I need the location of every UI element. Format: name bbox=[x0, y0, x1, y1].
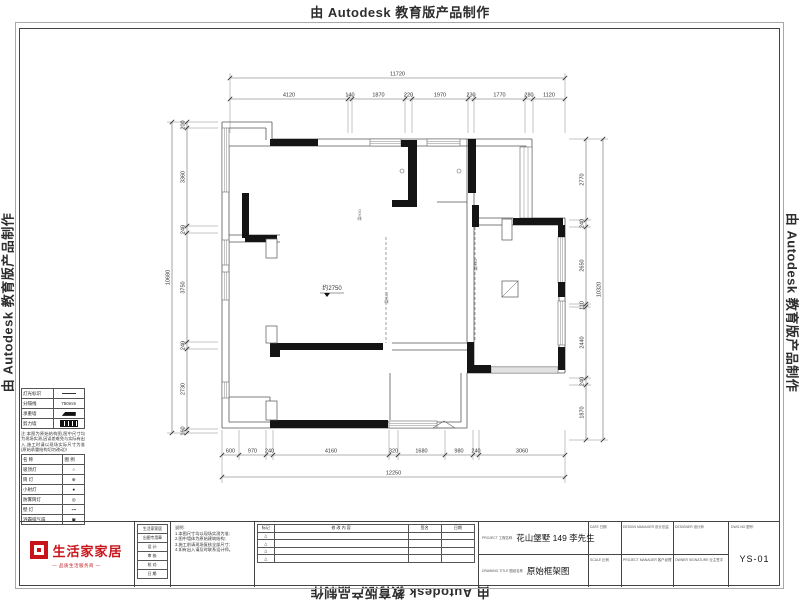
dim-label: 320 bbox=[389, 449, 398, 455]
brand-logo-icon bbox=[30, 541, 48, 559]
elevation-marker bbox=[324, 293, 330, 297]
legend-cell bbox=[274, 555, 408, 563]
legend-cell: 防雾筒灯 bbox=[22, 495, 63, 505]
info-grid-cell: PROJECT MANAGER 客户经理 bbox=[622, 555, 674, 588]
dim-label: 1870 bbox=[372, 93, 384, 99]
legend-wall-table: 灯光标识分隔线750mm承重墙剪力墙 bbox=[21, 388, 85, 429]
dim-label: 240 bbox=[471, 449, 480, 455]
dim-label: 1870 bbox=[580, 406, 586, 418]
bearing-wall bbox=[270, 343, 383, 350]
legend-cell bbox=[408, 555, 441, 563]
info-grid: DATE 日期DESIGN MANAGER 设计总监DESIGNER 设计师SC… bbox=[589, 522, 729, 587]
dim-label: 140 bbox=[345, 93, 354, 99]
dim-label: 240 bbox=[181, 225, 187, 234]
info-grid-cell: DATE 日期 bbox=[589, 522, 622, 555]
pilaster bbox=[266, 239, 277, 258]
bearing-wall bbox=[468, 139, 476, 193]
legend-cell: 日 期: bbox=[138, 570, 168, 579]
dim-label: 240 bbox=[181, 341, 187, 350]
legend-cell: 750mm bbox=[53, 399, 85, 409]
project-cell: PROJECT 工程名称 花山堡墅 149 李先生 DRAWING TITLE … bbox=[479, 522, 589, 587]
legend-cell bbox=[441, 555, 474, 563]
legend-cell: 吸顶灯 bbox=[22, 465, 63, 475]
dim-label: 4160 bbox=[325, 449, 337, 455]
bearing-wall bbox=[472, 205, 479, 227]
project-name-row: PROJECT 工程名称 花山堡墅 149 李先生 bbox=[479, 522, 588, 555]
dim-label: 240 bbox=[580, 377, 586, 386]
dim-label: 220 bbox=[404, 93, 413, 99]
window bbox=[491, 367, 558, 373]
bearing-wall bbox=[270, 350, 280, 357]
drain-symbol bbox=[400, 169, 404, 173]
dim-label: 200 bbox=[181, 120, 187, 129]
drawing-title-row: DRAWING TITLE 图纸名称 原始框架图 bbox=[479, 555, 588, 588]
legend-cell bbox=[53, 419, 85, 429]
legend-cell: 生活家家居 bbox=[138, 525, 168, 534]
legend-cell bbox=[441, 532, 474, 540]
window bbox=[389, 421, 437, 428]
bearing-wall bbox=[270, 420, 388, 428]
window bbox=[222, 128, 229, 192]
legend-cell: ⊶ bbox=[63, 505, 85, 515]
info-grid-cell: SCALE 比例 bbox=[589, 555, 622, 588]
legend-cell: 日期 bbox=[441, 525, 474, 533]
legend-cell: ● bbox=[63, 485, 85, 495]
dim-total-label: 12250 bbox=[386, 471, 401, 477]
legend-note: 注:本图为原始结构图,图中尺寸均为现场实测,因误差难免与实际有出入,施工时请以现… bbox=[21, 431, 85, 452]
bearing-wall bbox=[270, 139, 318, 146]
window bbox=[222, 272, 229, 300]
brand-tagline: — 品质生活服务商 — bbox=[52, 563, 101, 569]
pilaster bbox=[502, 219, 512, 240]
dim-label: 600 bbox=[226, 449, 235, 455]
general-notes: 说明:1.本图尺寸均以现场实测为准;2.图中墙体为原始建筑结构;3.施工前请现场… bbox=[171, 522, 255, 587]
legend-cell: 签名 bbox=[408, 525, 441, 533]
legend-cell bbox=[441, 547, 474, 555]
info-grid-cell: DESIGNER 设计师 bbox=[674, 522, 729, 555]
pilaster bbox=[266, 326, 277, 343]
dim-label: 2650 bbox=[580, 259, 586, 271]
dim-label: 110 bbox=[580, 301, 586, 310]
dim-label: 1970 bbox=[434, 93, 446, 99]
drain-symbol bbox=[457, 169, 461, 173]
beam-label: 梁H30 bbox=[356, 209, 362, 221]
window bbox=[520, 147, 532, 218]
legend-cell: ○ bbox=[63, 465, 85, 475]
brand-name: 生活家家居 bbox=[52, 541, 122, 560]
dim-label: 3750 bbox=[181, 281, 187, 293]
legend-cell: △ bbox=[258, 555, 275, 563]
legend-cell: 剪力墙 bbox=[22, 419, 54, 429]
legend-symbol-table: 名 称图 例吸顶灯○筒 灯⊕小射灯●防雾筒灯◎壁 灯⊶浴霸排气扇▣ bbox=[21, 454, 85, 525]
legend-cell: 校 对: bbox=[138, 561, 168, 570]
bearing-wall bbox=[558, 282, 565, 297]
dim-total-label: 10320 bbox=[597, 282, 603, 297]
dwg-no-value: YS-01 bbox=[729, 531, 780, 587]
bearing-wall bbox=[401, 140, 417, 147]
legend-cell: △ bbox=[258, 540, 275, 548]
elevation-label: 约2750 bbox=[322, 284, 342, 292]
legend-cell: 标记 bbox=[258, 525, 275, 533]
bearing-wall bbox=[558, 347, 565, 370]
legend-cell bbox=[274, 532, 408, 540]
dim-label: 980 bbox=[454, 449, 463, 455]
dim-total-label: 11720 bbox=[390, 72, 405, 78]
legend-hatch-symbol bbox=[60, 420, 78, 427]
bearing-wall bbox=[558, 225, 565, 237]
dim-label: 2440 bbox=[580, 336, 586, 348]
info-grid-cell: DESIGN MANAGER 设计总监 bbox=[622, 522, 674, 555]
window bbox=[558, 301, 565, 345]
legend-cell bbox=[408, 532, 441, 540]
company-info-table: 生活家家居出图专用章设 计:审 核:校 对:日 期: bbox=[135, 522, 171, 587]
window bbox=[558, 237, 565, 283]
title-block: 生活家家居 — 品质生活服务商 — 生活家家居出图专用章设 计:审 核:校 对:… bbox=[19, 521, 780, 586]
note-line: 4.如有出入请及时联系设计师。 bbox=[175, 547, 250, 553]
legend-cell: 名 称 bbox=[22, 455, 63, 465]
legend-cell bbox=[53, 389, 85, 399]
legend-cell: 出图专用章 bbox=[138, 534, 168, 543]
dim-total-label: 10680 bbox=[166, 270, 172, 285]
legend-cell: 承重墙 bbox=[22, 409, 54, 419]
legend-cell bbox=[274, 547, 408, 555]
legend-cell bbox=[408, 540, 441, 548]
legend-cell bbox=[408, 547, 441, 555]
floor-plan-svg: 梁H30梁H30梁H30约275041201401870220197023017… bbox=[0, 0, 800, 600]
project-name-value: 花山堡墅 149 李先生 bbox=[516, 532, 594, 544]
dim-label: 1680 bbox=[415, 449, 427, 455]
revision-table: 标记修 改 内 容签名日期△△△△ bbox=[255, 522, 479, 587]
dim-label: 3060 bbox=[516, 449, 528, 455]
legend-cell: △ bbox=[258, 532, 275, 540]
bearing-wall bbox=[408, 147, 417, 207]
dim-label: 160 bbox=[181, 426, 187, 435]
dim-label: 280 bbox=[524, 93, 533, 99]
pilaster bbox=[266, 401, 277, 420]
window bbox=[222, 240, 229, 265]
dim-label: 230 bbox=[466, 93, 475, 99]
dim-label: 3360 bbox=[181, 171, 187, 183]
legend-cell bbox=[53, 409, 85, 419]
dwg-no-cell: DWG.NO 图号: YS-01 bbox=[729, 522, 780, 587]
dim-label: 970 bbox=[248, 449, 257, 455]
beam-label: 梁H30 bbox=[383, 292, 389, 304]
beam-label: 梁H30 bbox=[472, 259, 478, 271]
drawing-title-value: 原始框架图 bbox=[527, 565, 570, 577]
legend-cell: 分隔线 bbox=[22, 399, 54, 409]
legend-line-symbol bbox=[62, 393, 76, 394]
dim-label: 2770 bbox=[580, 173, 586, 185]
dim-label: 4120 bbox=[283, 93, 295, 99]
legend-cell: 小射灯 bbox=[22, 485, 63, 495]
drawing-sheet: 由 Autodesk 教育版产品制作 由 Autodesk 教育版产品制作 由 … bbox=[0, 0, 800, 600]
legend-cell: 图 例 bbox=[63, 455, 85, 465]
window bbox=[427, 139, 460, 146]
legend-cell: 筒 灯 bbox=[22, 475, 63, 485]
window bbox=[370, 139, 401, 146]
legend-cell bbox=[441, 540, 474, 548]
legend-cell: ◎ bbox=[63, 495, 85, 505]
bearing-wall bbox=[392, 200, 417, 207]
dim-label: 2730 bbox=[181, 383, 187, 395]
bearing-wall bbox=[467, 342, 474, 373]
legend-cell: 设 计: bbox=[138, 543, 168, 552]
legend-panel: 灯光标识分隔线750mm承重墙剪力墙 注:本图为原始结构图,图中尺寸均为现场实测… bbox=[21, 388, 85, 525]
bearing-wall bbox=[474, 365, 491, 373]
dim-label: 240 bbox=[265, 449, 274, 455]
bearing-wall bbox=[242, 193, 249, 238]
legend-cell: 壁 灯 bbox=[22, 505, 63, 515]
window bbox=[222, 382, 229, 398]
bearing-wall bbox=[513, 218, 563, 225]
legend-cell: 修 改 内 容 bbox=[274, 525, 408, 533]
legend-cell: 审 核: bbox=[138, 552, 168, 561]
brand-logo: 生活家家居 — 品质生活服务商 — bbox=[19, 522, 135, 587]
legend-solid-symbol bbox=[62, 412, 76, 416]
dim-label: 1770 bbox=[493, 93, 505, 99]
legend-cell bbox=[274, 540, 408, 548]
legend-cell: 灯光标识 bbox=[22, 389, 54, 399]
dim-label: 1120 bbox=[543, 93, 555, 99]
dim-label: 240 bbox=[580, 219, 586, 228]
legend-cell: ⊕ bbox=[63, 475, 85, 485]
legend-cell: △ bbox=[258, 547, 275, 555]
info-grid-cell: OWNER SIGNATURE 业主签字 bbox=[674, 555, 729, 588]
